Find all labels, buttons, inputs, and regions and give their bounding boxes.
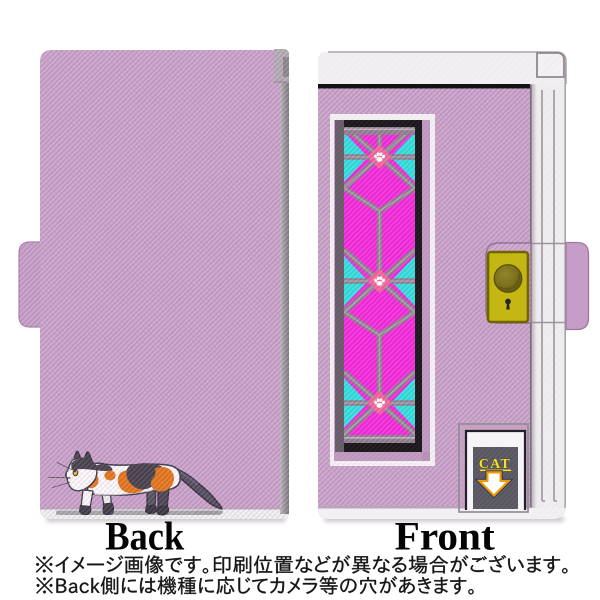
svg-text:CAT: CAT [479, 456, 511, 471]
svg-text:Front: Front [395, 514, 495, 559]
svg-text:Back: Back [105, 514, 184, 559]
